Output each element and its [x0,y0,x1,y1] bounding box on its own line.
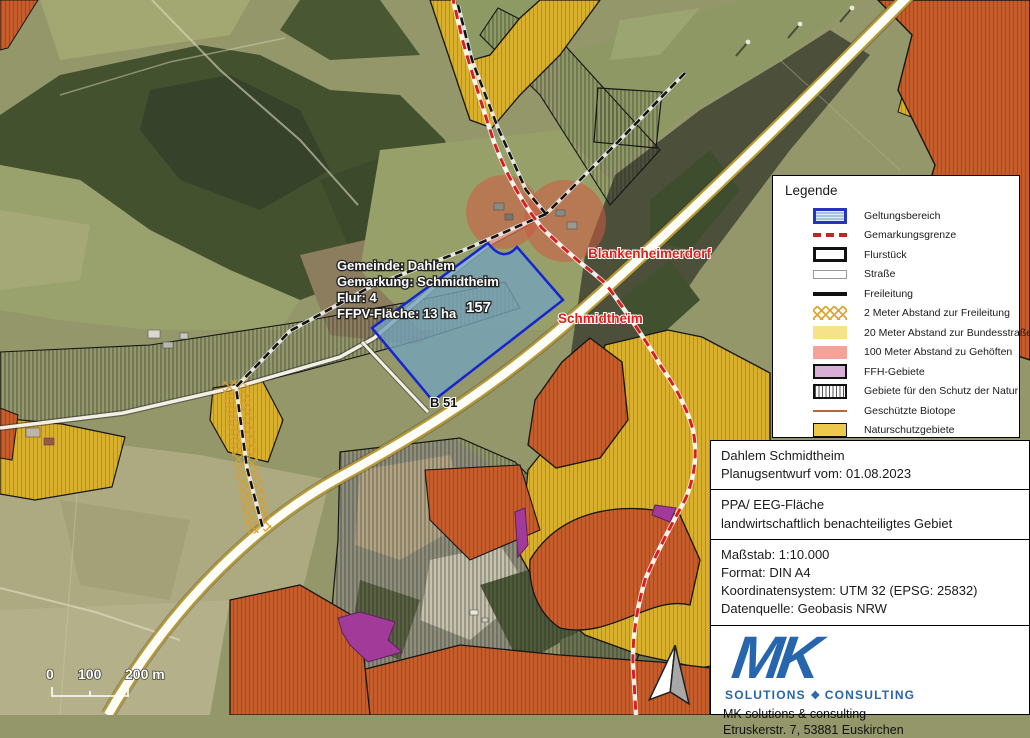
abstand-bundesstrasse-swatch [813,326,847,339]
legend-item-label: 2 Meter Abstand zur Freileitung [864,307,1010,319]
company-name: MK solutions & consulting [723,706,1019,722]
meta-scale: Maßstab: 1:10.000 [721,546,1019,564]
meta-crs: Koordinatensystem: UTM 32 (EPSG: 25832) [721,582,1019,600]
freileitung-swatch [813,292,847,296]
legend-title: Legende [785,183,1019,198]
legend-item-naturschutz: Naturschutzgebiete [783,421,1019,441]
ffh-swatch [813,364,847,379]
legend-item-abstand-bundesstrasse: 20 Meter Abstand zur Bundesstraße [783,323,1019,343]
legend-item-label: Naturschutzgebiete [864,424,954,436]
label-gemarkung: Gemarkung: Schmidtheim [337,274,499,289]
scale-tick-200: 200 m [125,666,165,682]
legend-item-label: Straße [864,268,896,280]
legend-item-label: Gemarkungsgrenze [864,229,956,241]
legend-item-schutz-natur: Gebiete für den Schutz der Natur [783,382,1019,402]
schutz-natur-swatch [813,384,847,399]
legend-item-label: Geschützte Biotope [864,405,956,417]
logo-diamond-icon: ❖ [810,690,820,702]
legend-item-label: FFH-Gebiete [864,366,925,378]
logo-subtitle-right: CONSULTING [825,688,915,702]
flurstueck-swatch [813,247,847,262]
mk-logo: MK [729,630,820,686]
label-gemeinde: Gemeinde: Dahlem [337,258,455,273]
area-description: landwirtschaftlich benachteiligtes Gebie… [721,515,1019,533]
legend-item-label: 100 Meter Abstand zu Gehöften [864,346,1012,358]
label-flaeche: FFPV-Fläche: 13 ha [337,306,457,321]
plan-document: { "map": { "labels": { "gemeinde": "Geme… [0,0,1030,715]
plan-date: Planugsentwurf vom: 01.08.2023 [721,465,1019,483]
meta-datasource: Datenquelle: Geobasis NRW [721,600,1019,618]
legend-item-freileitung: Freileitung [783,284,1019,304]
legend-item-geltungsbereich: Geltungsbereich [783,206,1019,226]
legend-item-flurstueck: Flurstück [783,245,1019,265]
plan-meta-section: Maßstab: 1:10.000 Format: DIN A4 Koordin… [711,540,1029,626]
label-blankenheimerdorf: Blankenheimerdorf [588,246,712,261]
scale-tick-0: 0 [46,666,54,682]
legend-item-label: Freileitung [864,288,913,300]
meta-format: Format: DIN A4 [721,564,1019,582]
geltungsbereich-swatch [813,208,847,224]
naturschutz-swatch [813,423,847,437]
legend-item-label: Flurstück [864,249,907,261]
legend-box: Legende Geltungsbereich Gemarkungsgrenze… [772,175,1020,438]
abstand-gehoefte-swatch [813,346,847,359]
label-b51: B 51 [430,395,457,410]
legend-item-label: 20 Meter Abstand zur Bundesstraße [864,327,1030,339]
plan-area-section: PPA/ EEG-Fläche landwirtschaftlich benac… [711,490,1029,539]
gemarkungsgrenze-swatch [813,233,847,237]
area-type: PPA/ EEG-Fläche [721,496,1019,514]
plan-title-section: Dahlem Schmidtheim Planugsentwurf vom: 0… [711,441,1029,490]
title-block: Dahlem Schmidtheim Planugsentwurf vom: 0… [710,440,1030,715]
strasse-swatch [813,270,847,279]
legend-item-gemarkungsgrenze: Gemarkungsgrenze [783,226,1019,246]
legend-item-ffh: FFH-Gebiete [783,362,1019,382]
label-schmidtheim: Schmidtheim [558,311,643,326]
biotope-swatch [813,410,847,412]
legend-item-abstand-gehoefte: 100 Meter Abstand zu Gehöften [783,343,1019,363]
legend-item-strasse: Straße [783,265,1019,285]
company-logo-section: MK SOLUTIONS ❖ CONSULTING MK solutions &… [711,626,1029,738]
scale-tick-100: 100 [78,666,102,682]
plan-title: Dahlem Schmidtheim [721,447,1019,465]
legend-item-label: Geltungsbereich [864,210,940,222]
legend-item-label: Gebiete für den Schutz der Natur [864,385,1018,397]
abstand-freileitung-swatch [813,306,847,320]
legend-item-abstand-freileitung: 2 Meter Abstand zur Freileitung [783,304,1019,324]
company-address: Etruskerstr. 7, 53881 Euskirchen [723,722,1019,738]
label-parcel-number: 157 [466,299,491,316]
legend-item-biotope: Geschützte Biotope [783,401,1019,421]
label-flur: Flur: 4 [337,290,377,305]
